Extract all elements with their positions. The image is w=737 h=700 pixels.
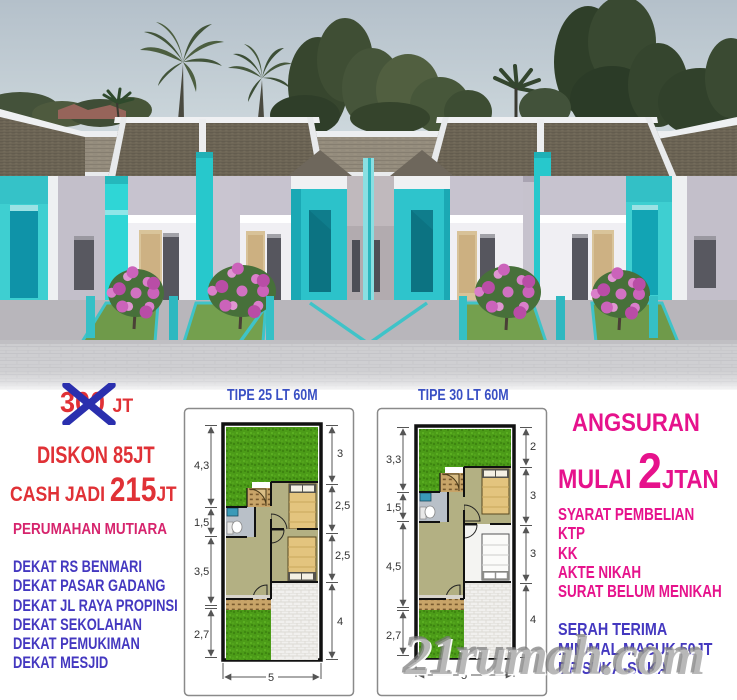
svg-text:3,3: 3,3 (386, 454, 401, 466)
svg-text:3,5: 3,5 (194, 566, 209, 578)
svg-text:4: 4 (337, 616, 343, 628)
svg-text:3: 3 (530, 548, 536, 560)
svg-text:3: 3 (337, 448, 343, 460)
svg-text:2,5: 2,5 (335, 500, 350, 512)
svg-text:1,5: 1,5 (194, 517, 209, 529)
svg-text:2: 2 (530, 441, 536, 453)
svg-text:5: 5 (268, 672, 274, 684)
svg-text:2,7: 2,7 (386, 630, 401, 642)
svg-text:3: 3 (530, 490, 536, 502)
svg-text:4,3: 4,3 (194, 460, 209, 472)
svg-text:1,5: 1,5 (386, 502, 401, 514)
svg-text:4,5: 4,5 (386, 561, 401, 573)
svg-text:2,7: 2,7 (194, 629, 209, 641)
svg-text:2,5: 2,5 (335, 550, 350, 562)
